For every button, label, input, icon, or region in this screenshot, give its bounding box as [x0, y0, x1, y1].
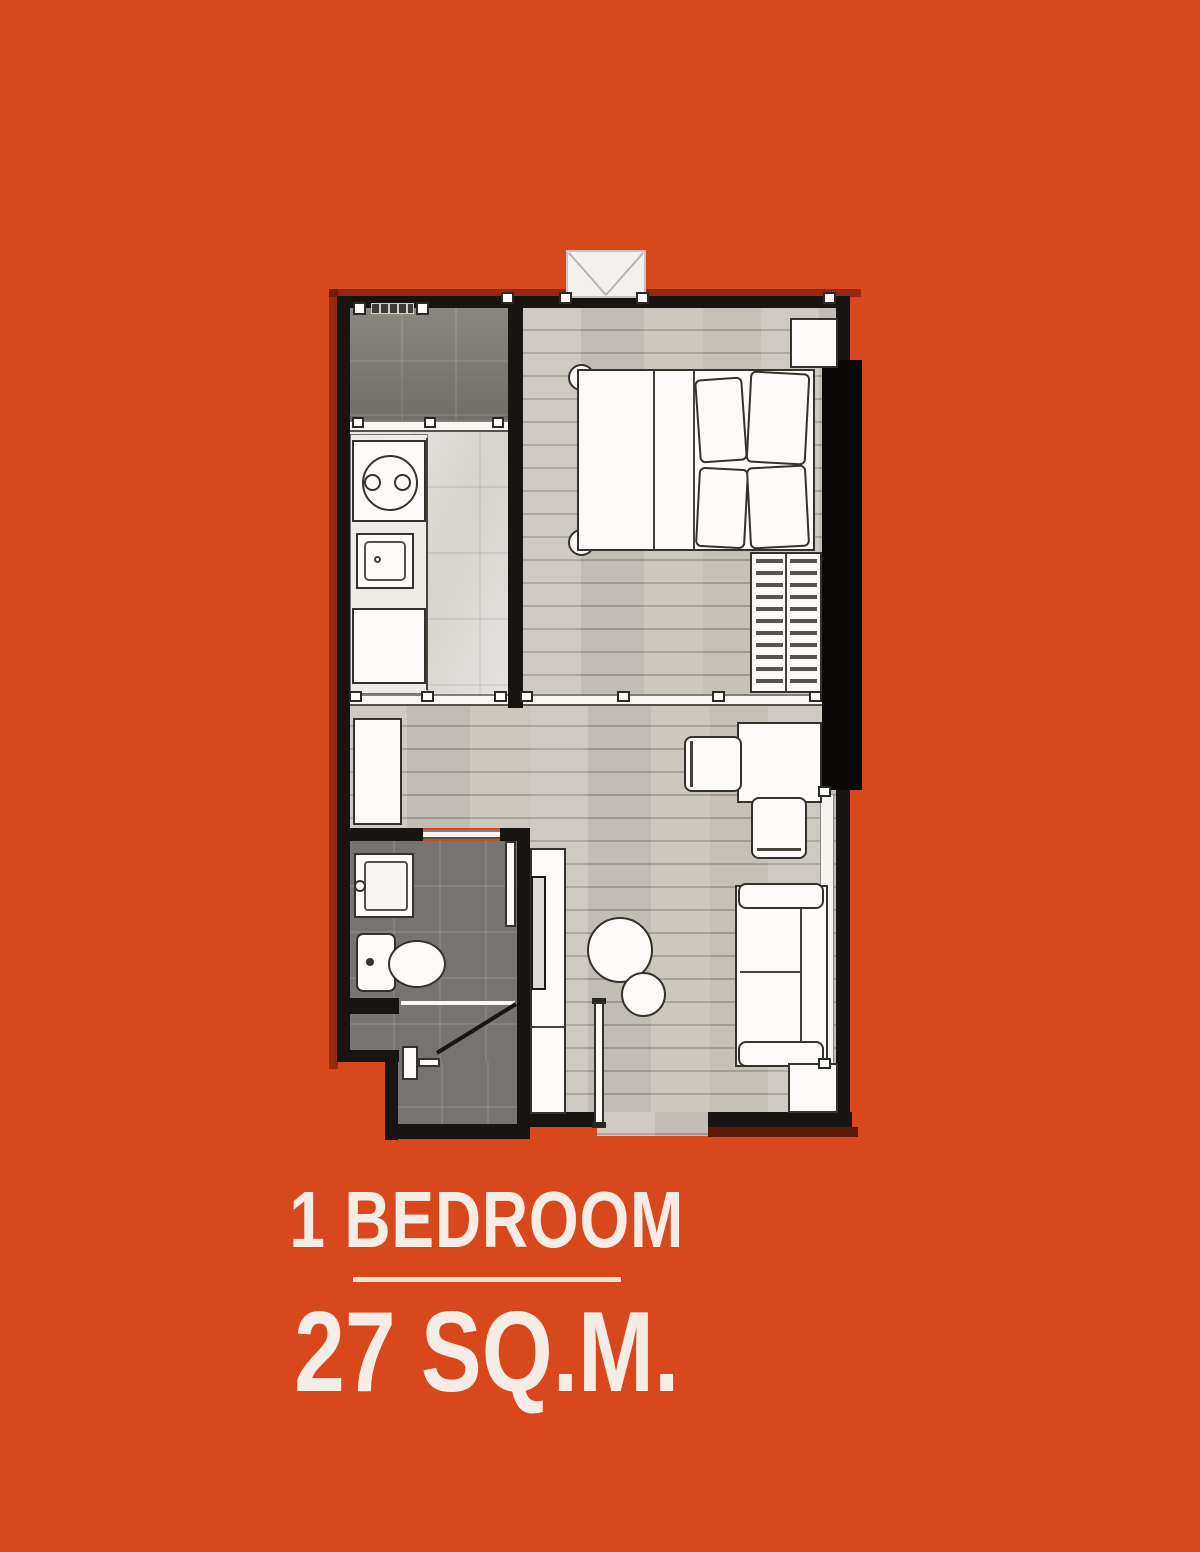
wall-bottom-left-of-door	[530, 1112, 597, 1127]
utility-vent-slats	[371, 303, 414, 314]
pillow	[695, 467, 749, 550]
kitchen-sink-basin	[364, 541, 406, 581]
sofa-seat-line	[740, 971, 800, 973]
wall-right-top	[836, 296, 850, 370]
pillow	[694, 376, 748, 463]
sofa-back-line	[800, 889, 802, 1063]
toilet-bowl	[388, 940, 446, 988]
shower-handle	[418, 1058, 440, 1067]
wall-left	[337, 296, 350, 1062]
entry-threshold	[597, 1112, 708, 1136]
utility-vent-end-right	[416, 302, 429, 315]
poster-canvas: 1 BEDROOM 27 SQ.M.	[0, 0, 1200, 1552]
wall-bathroom-top-left	[349, 828, 423, 841]
pillow	[746, 370, 811, 465]
window-connector	[818, 786, 831, 797]
tv-console-divider	[532, 1026, 564, 1028]
wall-shower-stub	[349, 998, 399, 1014]
bed-blanket-line-1	[653, 371, 655, 549]
stove-burner-left	[364, 474, 381, 491]
window-connector	[501, 292, 514, 304]
caption-unit-type: 1 BEDROOM	[137, 1180, 837, 1260]
window-connector	[559, 292, 572, 304]
partition-connector	[617, 691, 630, 702]
television	[531, 876, 546, 990]
kitchen-sink-drain	[374, 556, 381, 563]
window-connector	[823, 292, 836, 304]
wall-kitchen-bedroom	[508, 302, 523, 708]
refrigerator-cabinet	[352, 608, 426, 684]
partition-connector	[421, 691, 434, 702]
wash-basin	[364, 861, 408, 911]
unit-area-text: 27 SQ.M.	[294, 1296, 679, 1410]
wall-bathroom-top-stub	[500, 828, 530, 841]
sofa-armrest-top	[738, 883, 824, 909]
partition-connector	[494, 691, 507, 702]
toilet-flush-button	[366, 958, 374, 966]
entrance-door-cap-bottom	[592, 1122, 606, 1128]
utility-vent-end-left	[353, 302, 366, 315]
wall-bottom-bathroom	[385, 1124, 530, 1139]
ac-ledge-black-band	[822, 360, 862, 790]
wardrobe-rail	[785, 554, 787, 691]
side-table	[788, 1063, 838, 1113]
caption-divider-line	[353, 1277, 621, 1282]
bathroom-door-sill	[423, 830, 500, 839]
wall-right-bottom	[836, 790, 850, 1127]
partition-connector	[520, 691, 533, 702]
stool-back	[757, 848, 801, 851]
counter-connector	[352, 417, 364, 428]
shower-fixture	[402, 1046, 418, 1080]
desk-chair-back	[690, 741, 693, 787]
shower-glass-panel	[400, 1000, 516, 1006]
caption-unit-area: 27 SQ.M.	[137, 1296, 837, 1410]
sofa	[735, 885, 828, 1067]
pillow	[746, 464, 810, 549]
bedside-shelf	[790, 318, 838, 368]
window-connector	[636, 292, 649, 304]
wall-bathroom-right	[517, 841, 530, 1124]
coffee-table-small	[621, 972, 666, 1017]
counter-connector	[424, 417, 436, 428]
counter-edge-line	[426, 438, 428, 690]
partition-connector	[349, 691, 362, 702]
wall-bottom-shadow	[708, 1127, 858, 1137]
wardrobe-hangers-left	[756, 559, 783, 687]
partition-connector	[809, 691, 822, 702]
unit-type-text: 1 BEDROOM	[290, 1180, 685, 1260]
utility-area-floor	[349, 308, 508, 422]
bathroom-door-leaf	[505, 841, 516, 927]
window-connector	[818, 1058, 831, 1069]
basin-faucet	[354, 880, 366, 892]
wall-bottom-right-of-door	[708, 1112, 852, 1127]
entrance-door-leaf	[594, 1002, 604, 1124]
wardrobe-hangers-right	[790, 559, 817, 687]
desk	[737, 722, 822, 803]
air-conditioning-unit	[566, 250, 646, 298]
stove-burner-right	[394, 474, 411, 491]
hall-cabinet	[353, 718, 402, 825]
partition-connector	[712, 691, 725, 702]
counter-connector	[492, 417, 504, 428]
bedroom-partition-sill	[523, 694, 836, 706]
